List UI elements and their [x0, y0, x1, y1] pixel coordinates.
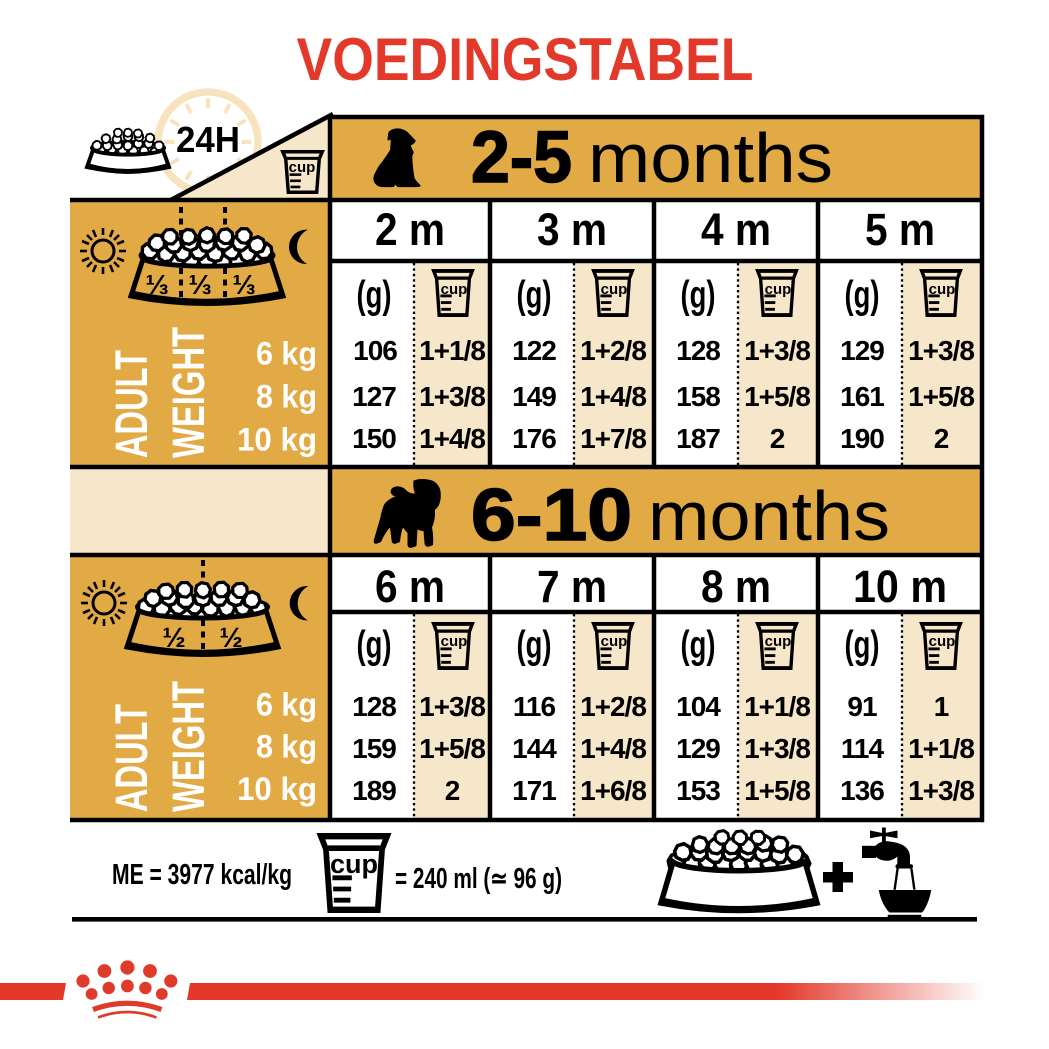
- svg-text:116: 116: [513, 691, 556, 722]
- svg-text:1+3/8: 1+3/8: [744, 733, 810, 764]
- svg-text:ADULT: ADULT: [106, 350, 157, 458]
- svg-text:cup: cup: [330, 849, 378, 879]
- svg-text:7 m: 7 m: [537, 561, 607, 612]
- svg-text:½: ½: [162, 622, 185, 653]
- svg-text:(g): (g): [845, 274, 880, 317]
- svg-text:6 m: 6 m: [375, 561, 445, 612]
- svg-text:159: 159: [352, 733, 396, 764]
- svg-text:176: 176: [512, 423, 556, 454]
- svg-text:⅓: ⅓: [232, 269, 255, 300]
- svg-text:3 m: 3 m: [537, 204, 607, 255]
- svg-text:WEIGHT: WEIGHT: [163, 681, 214, 812]
- svg-text:(g): (g): [681, 274, 716, 317]
- svg-text:1+5/8: 1+5/8: [908, 381, 974, 412]
- svg-text:104: 104: [676, 691, 721, 722]
- svg-text:ADULT: ADULT: [106, 704, 157, 812]
- svg-text:2: 2: [934, 423, 949, 454]
- svg-text:cup: cup: [289, 159, 316, 176]
- svg-text:114: 114: [841, 733, 885, 764]
- svg-text:144: 144: [512, 733, 557, 764]
- svg-text:2 m: 2 m: [375, 204, 445, 255]
- svg-text:10 m: 10 m: [853, 561, 947, 612]
- svg-text:VOEDINGSTABEL: VOEDINGSTABEL: [297, 26, 754, 93]
- svg-text:1+3/8: 1+3/8: [419, 691, 485, 722]
- svg-text:8 kg: 8 kg: [256, 379, 317, 415]
- svg-text:1+3/8: 1+3/8: [908, 775, 974, 806]
- svg-text:128: 128: [676, 335, 720, 366]
- svg-text:1+5/8: 1+5/8: [744, 775, 810, 806]
- svg-text:2: 2: [770, 423, 785, 454]
- svg-text:(g): (g): [517, 624, 552, 667]
- svg-text:(g): (g): [845, 624, 880, 667]
- svg-text:4 m: 4 m: [701, 204, 771, 255]
- svg-text:cup: cup: [929, 281, 956, 298]
- svg-text:161: 161: [840, 381, 884, 412]
- svg-text:⅓: ⅓: [188, 269, 211, 300]
- svg-text:cup: cup: [765, 281, 792, 298]
- svg-text:1+4/8: 1+4/8: [580, 733, 646, 764]
- svg-text:24H: 24H: [176, 119, 240, 160]
- svg-text:months: months: [648, 477, 890, 555]
- svg-text:1+1/8: 1+1/8: [908, 733, 974, 764]
- svg-text:149: 149: [512, 381, 556, 412]
- svg-text:6 kg: 6 kg: [256, 336, 317, 372]
- svg-text:8 kg: 8 kg: [256, 729, 317, 765]
- svg-text:1+1/8: 1+1/8: [744, 691, 810, 722]
- svg-text:1+4/8: 1+4/8: [419, 423, 485, 454]
- svg-text:1+7/8: 1+7/8: [580, 423, 646, 454]
- svg-text:(g): (g): [357, 274, 392, 317]
- svg-text:1+2/8: 1+2/8: [580, 335, 646, 366]
- svg-text:187: 187: [676, 423, 720, 454]
- svg-text:158: 158: [676, 381, 720, 412]
- svg-text:1+3/8: 1+3/8: [419, 381, 485, 412]
- svg-text:5 m: 5 m: [865, 204, 935, 255]
- svg-text:cup: cup: [601, 633, 628, 650]
- svg-text:1+5/8: 1+5/8: [744, 381, 810, 412]
- svg-text:1: 1: [934, 691, 949, 722]
- svg-text:cup: cup: [765, 633, 792, 650]
- svg-text:cup: cup: [601, 281, 628, 298]
- svg-text:171: 171: [512, 775, 556, 806]
- svg-text:6-10: 6-10: [471, 475, 632, 556]
- svg-text:8 m: 8 m: [701, 561, 771, 612]
- svg-text:136: 136: [840, 775, 884, 806]
- svg-text:cup: cup: [441, 281, 468, 298]
- svg-text:91: 91: [847, 691, 877, 722]
- svg-text:189: 189: [352, 775, 396, 806]
- svg-text:1+5/8: 1+5/8: [419, 733, 485, 764]
- svg-text:1+3/8: 1+3/8: [744, 335, 810, 366]
- svg-text:2-5: 2-5: [471, 117, 572, 198]
- svg-text:150: 150: [352, 423, 396, 454]
- svg-text:(g): (g): [517, 274, 552, 317]
- svg-text:1+1/8: 1+1/8: [419, 335, 485, 366]
- svg-text:cup: cup: [441, 633, 468, 650]
- svg-text:122: 122: [512, 335, 556, 366]
- svg-text:129: 129: [840, 335, 884, 366]
- svg-text:153: 153: [676, 775, 720, 806]
- svg-text:1+6/8: 1+6/8: [580, 775, 646, 806]
- svg-text:127: 127: [352, 381, 396, 412]
- svg-text:10 kg: 10 kg: [237, 771, 317, 807]
- svg-text:cup: cup: [929, 633, 956, 650]
- svg-text:129: 129: [676, 733, 720, 764]
- svg-text:(g): (g): [681, 624, 716, 667]
- svg-text:months: months: [588, 119, 833, 197]
- svg-text:1+3/8: 1+3/8: [908, 335, 974, 366]
- svg-text:1+2/8: 1+2/8: [580, 691, 646, 722]
- svg-text:(g): (g): [357, 624, 392, 667]
- svg-text:= 240 ml (≃ 96 g): = 240 ml (≃ 96 g): [395, 863, 562, 895]
- svg-text:½: ½: [219, 622, 242, 653]
- svg-text:128: 128: [352, 691, 396, 722]
- svg-text:1+4/8: 1+4/8: [580, 381, 646, 412]
- svg-text:6 kg: 6 kg: [256, 687, 317, 723]
- svg-text:2: 2: [445, 775, 460, 806]
- svg-text:⅓: ⅓: [145, 269, 168, 300]
- svg-text:WEIGHT: WEIGHT: [163, 327, 214, 458]
- svg-text:190: 190: [840, 423, 884, 454]
- svg-text:106: 106: [353, 335, 397, 366]
- svg-text:10 kg: 10 kg: [237, 422, 317, 458]
- svg-text:ME = 3977 kcal/kg: ME = 3977 kcal/kg: [112, 859, 292, 891]
